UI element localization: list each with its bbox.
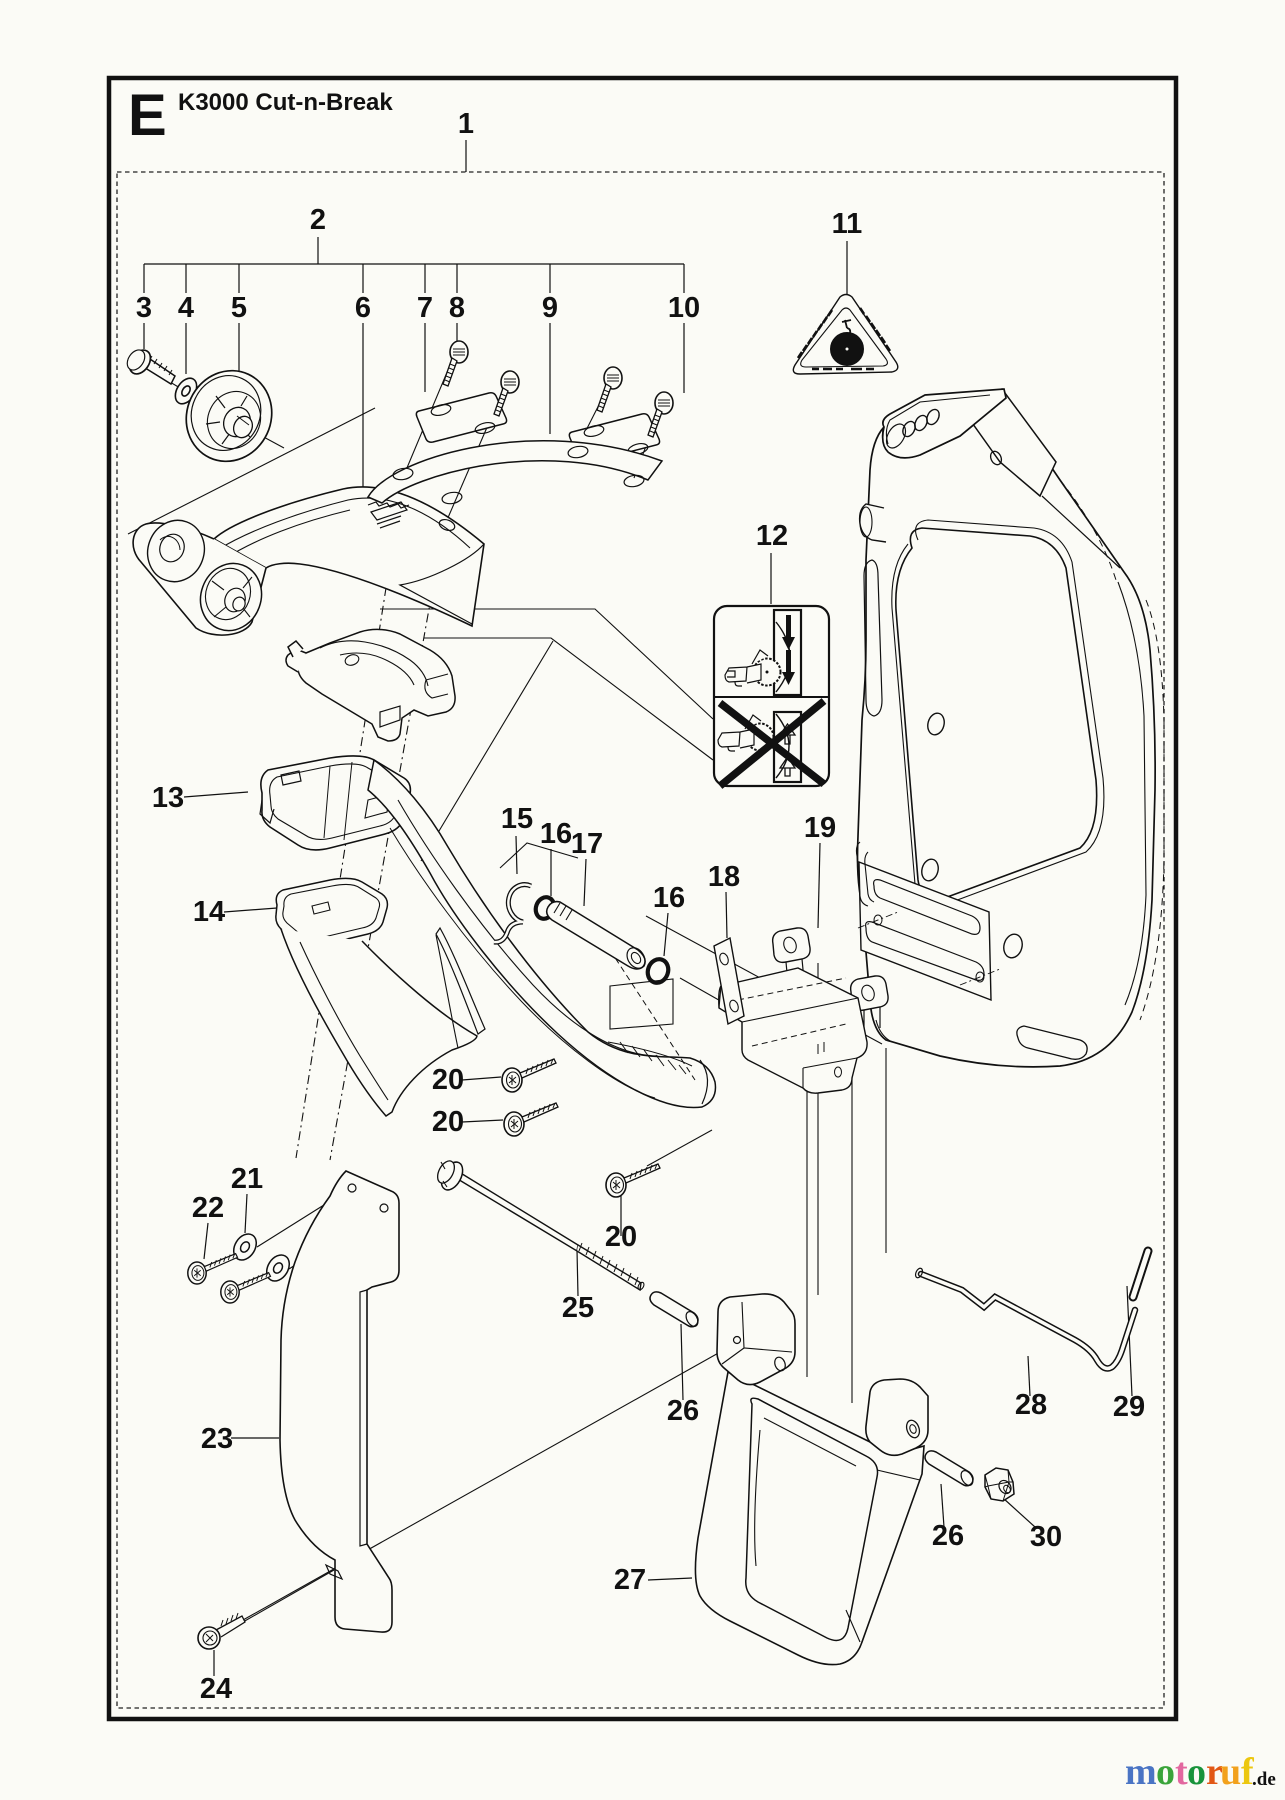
svg-text:25: 25 xyxy=(562,1292,594,1324)
svg-text:9: 9 xyxy=(542,292,558,324)
svg-text:.de: .de xyxy=(1252,1769,1276,1790)
svg-text:o: o xyxy=(1156,1751,1175,1793)
svg-text:3: 3 xyxy=(136,292,152,324)
svg-text:23: 23 xyxy=(201,1423,233,1455)
svg-text:19: 19 xyxy=(804,812,836,844)
svg-text:13: 13 xyxy=(152,782,184,814)
svg-text:u: u xyxy=(1220,1751,1241,1793)
svg-text:30: 30 xyxy=(1030,1521,1062,1553)
svg-text:24: 24 xyxy=(200,1673,232,1705)
svg-text:17: 17 xyxy=(571,828,603,860)
svg-text:6: 6 xyxy=(355,292,371,324)
svg-text:21: 21 xyxy=(231,1163,263,1195)
svg-text:16: 16 xyxy=(540,818,572,850)
svg-text:5: 5 xyxy=(231,292,247,324)
svg-text:8: 8 xyxy=(449,292,465,324)
svg-text:o: o xyxy=(1187,1751,1206,1793)
svg-text:m: m xyxy=(1125,1751,1157,1793)
svg-text:10: 10 xyxy=(668,292,700,324)
svg-text:15: 15 xyxy=(501,803,533,835)
svg-text:2: 2 xyxy=(310,204,326,236)
svg-text:K3000 Cut-n-Break: K3000 Cut-n-Break xyxy=(178,89,393,116)
svg-text:7: 7 xyxy=(417,292,433,324)
svg-text:11: 11 xyxy=(832,208,863,240)
svg-text:27: 27 xyxy=(614,1564,646,1596)
svg-text:E: E xyxy=(128,83,167,148)
svg-text:28: 28 xyxy=(1015,1389,1047,1421)
svg-text:20: 20 xyxy=(432,1064,464,1096)
svg-text:20: 20 xyxy=(432,1106,464,1138)
svg-text:22: 22 xyxy=(192,1192,224,1224)
svg-text:1: 1 xyxy=(458,108,474,140)
svg-text:18: 18 xyxy=(708,861,740,893)
svg-text:16: 16 xyxy=(653,882,685,914)
svg-text:26: 26 xyxy=(932,1520,964,1552)
svg-text:14: 14 xyxy=(193,896,225,928)
svg-text:12: 12 xyxy=(756,520,788,552)
svg-text:4: 4 xyxy=(178,292,194,324)
svg-text:29: 29 xyxy=(1113,1391,1145,1423)
